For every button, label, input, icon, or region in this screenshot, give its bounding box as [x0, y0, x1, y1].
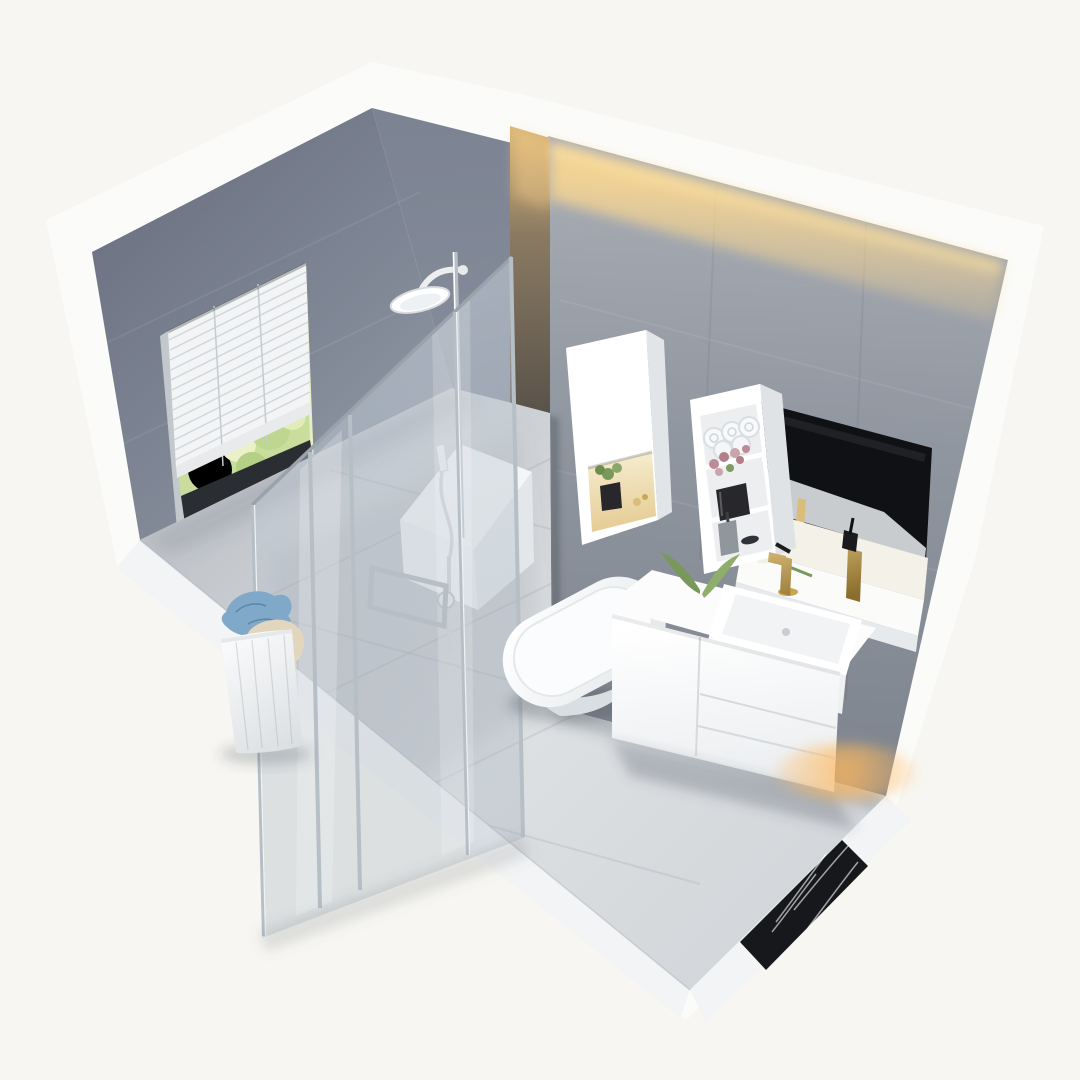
- soap-dispenser: [718, 520, 739, 556]
- tall-cabinet: [566, 330, 672, 545]
- shower-arm-flange: [458, 265, 468, 275]
- gold-tumbler: [846, 548, 862, 602]
- under-cabinet-glow: [776, 744, 916, 800]
- isometric-bathroom-scene: [0, 0, 1080, 1080]
- niche-gold-pebble: [633, 498, 641, 506]
- led-corner-spill: [514, 130, 548, 210]
- bathroom-render-canvas: [0, 0, 1080, 1080]
- niche-plant-pot: [600, 482, 622, 511]
- sink-drain: [782, 628, 790, 636]
